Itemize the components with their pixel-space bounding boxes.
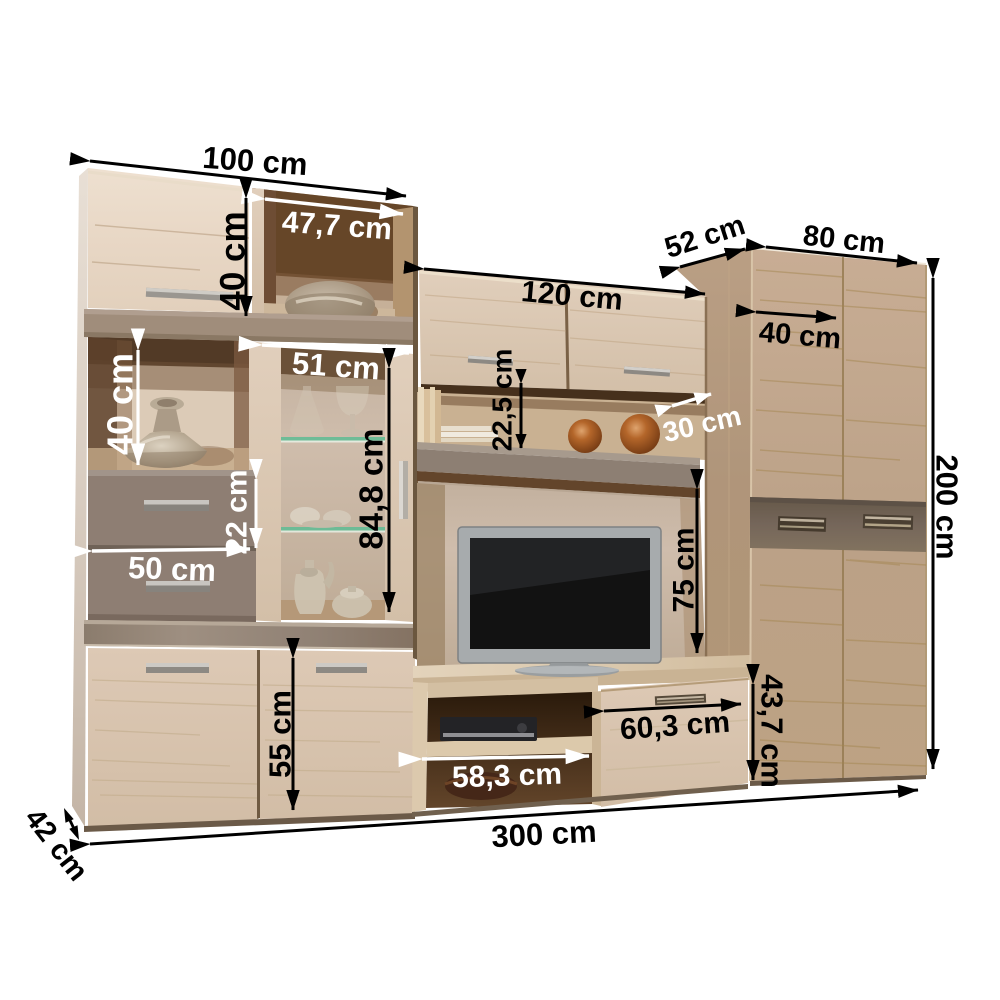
svg-text:22,5 cm: 22,5 cm	[487, 349, 518, 452]
svg-text:300 cm: 300 cm	[491, 814, 598, 854]
svg-text:50 cm: 50 cm	[127, 550, 216, 588]
svg-text:40 cm: 40 cm	[214, 211, 253, 310]
svg-text:75 cm: 75 cm	[668, 527, 701, 612]
svg-text:55 cm: 55 cm	[263, 690, 298, 778]
svg-text:43,7 cm: 43,7 cm	[755, 674, 790, 788]
svg-text:51 cm: 51 cm	[291, 345, 381, 386]
svg-text:100 cm: 100 cm	[201, 140, 308, 182]
svg-text:84,8 cm: 84,8 cm	[353, 428, 390, 549]
svg-text:58,3 cm: 58,3 cm	[451, 758, 562, 795]
svg-text:200 cm: 200 cm	[930, 454, 965, 559]
svg-text:40 cm: 40 cm	[100, 353, 141, 455]
svg-text:22 cm: 22 cm	[221, 469, 254, 554]
